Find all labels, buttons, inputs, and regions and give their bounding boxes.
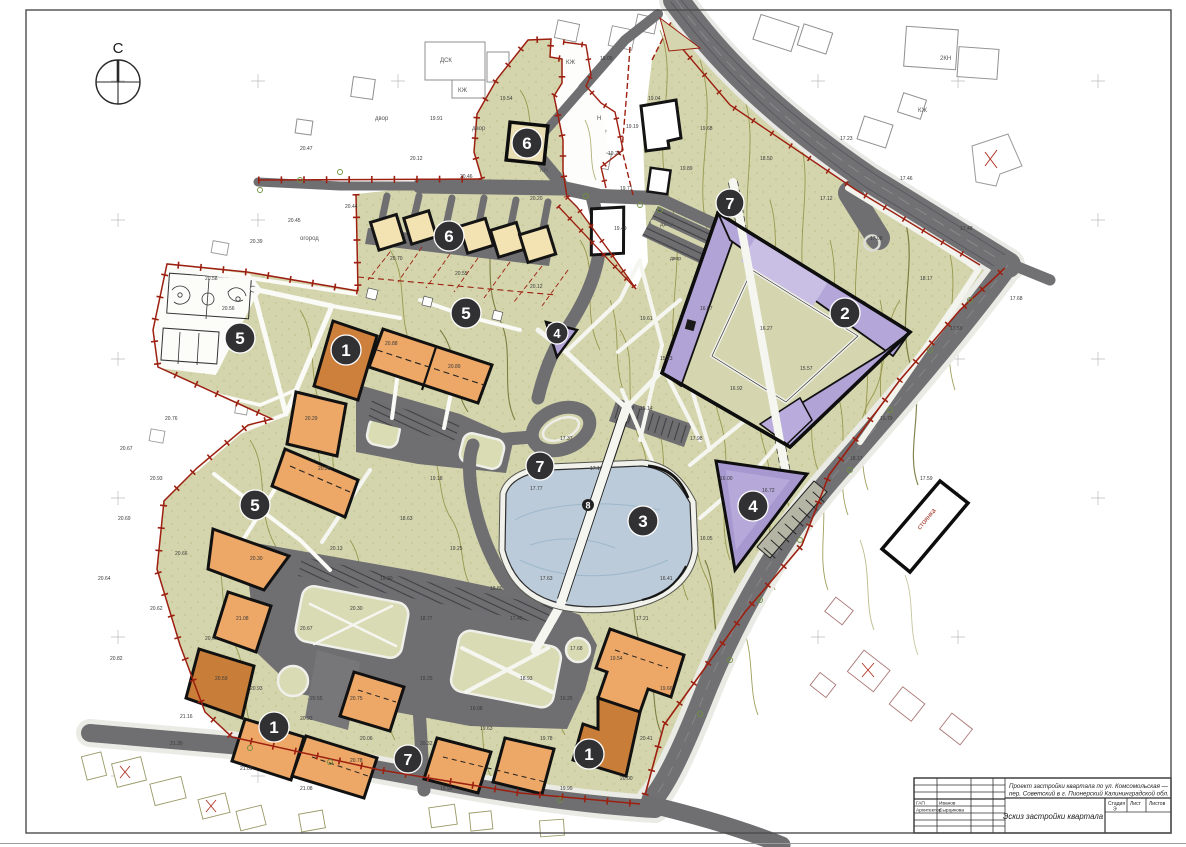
svg-text:17.12: 17.12 [820, 196, 833, 202]
svg-text:20.00: 20.00 [620, 776, 633, 782]
svg-text:18.77: 18.77 [420, 616, 433, 622]
svg-text:двор: двор [660, 222, 674, 228]
svg-text:ГАП: ГАП [916, 801, 925, 807]
svg-text:18.50: 18.50 [760, 156, 773, 162]
svg-text:огород: огород [300, 236, 319, 242]
svg-text:Архитектор: Архитектор [916, 808, 942, 814]
svg-text:20.67: 20.67 [120, 446, 133, 452]
svg-text:20.20: 20.20 [530, 196, 543, 202]
svg-text:17.17: 17.17 [590, 466, 603, 472]
svg-text:5: 5 [461, 304, 470, 323]
svg-text:Н: Н [597, 116, 601, 122]
svg-text:16.27: 16.27 [760, 326, 773, 332]
svg-text:19.49: 19.49 [614, 226, 627, 232]
svg-text:6: 6 [522, 134, 531, 153]
svg-text:19.19: 19.19 [626, 124, 639, 130]
svg-text:20.93: 20.93 [300, 716, 313, 722]
svg-text:16.92: 16.92 [730, 386, 743, 392]
svg-text:17.59: 17.59 [920, 476, 933, 482]
svg-text:20.55: 20.55 [455, 271, 468, 277]
svg-text:20.12: 20.12 [410, 156, 423, 162]
svg-text:2: 2 [840, 304, 849, 323]
svg-text:19.71: 19.71 [620, 186, 633, 192]
svg-text:5: 5 [235, 329, 244, 348]
svg-text:21.08: 21.08 [236, 616, 249, 622]
svg-text:21.30: 21.30 [170, 741, 183, 747]
svg-text:16.00: 16.00 [720, 476, 733, 482]
svg-text:Листов: Листов [1149, 801, 1166, 807]
svg-text:двор: двор [375, 116, 389, 122]
svg-text:2КН: 2КН [940, 56, 951, 62]
svg-text:19.25: 19.25 [450, 546, 463, 552]
svg-text:20.88: 20.88 [385, 341, 398, 347]
svg-text:17.21: 17.21 [636, 616, 649, 622]
svg-text:15.14: 15.14 [640, 406, 653, 412]
svg-text:8: 8 [585, 501, 590, 511]
svg-text:20.69: 20.69 [118, 516, 131, 522]
svg-text:19.18: 19.18 [430, 476, 443, 482]
svg-text:20.30: 20.30 [350, 606, 363, 612]
svg-text:20.93: 20.93 [250, 686, 263, 692]
svg-text:17.98: 17.98 [690, 436, 703, 442]
svg-text:20.66: 20.66 [175, 551, 188, 557]
svg-text:20.47: 20.47 [300, 146, 313, 152]
svg-text:20.75: 20.75 [350, 696, 363, 702]
svg-text:17.68: 17.68 [570, 646, 583, 652]
svg-text:17.45: 17.45 [510, 616, 523, 622]
svg-text:20.58: 20.58 [205, 276, 218, 282]
svg-text:20.64: 20.64 [98, 576, 111, 582]
svg-text:20.39: 20.39 [250, 239, 263, 245]
svg-text:17.68: 17.68 [1010, 296, 1023, 302]
svg-text:19.99: 19.99 [560, 786, 573, 792]
svg-text:1: 1 [584, 745, 593, 764]
svg-text:20.13: 20.13 [330, 546, 343, 552]
svg-text:КЖ: КЖ [918, 108, 927, 114]
svg-text:20.62: 20.62 [150, 606, 163, 612]
svg-text:16.05: 16.05 [700, 536, 713, 542]
svg-text:Сырцикова: Сырцикова [939, 808, 964, 814]
svg-text:17.77: 17.77 [530, 486, 543, 492]
svg-text:19.08: 19.08 [470, 706, 483, 712]
svg-text:20.41: 20.41 [640, 736, 653, 742]
svg-text:КЖ: КЖ [566, 60, 575, 66]
svg-text:20.55: 20.55 [310, 696, 323, 702]
svg-text:17.48: 17.48 [960, 226, 973, 232]
svg-text:15.23: 15.23 [660, 356, 673, 362]
svg-text:15.57: 15.57 [800, 366, 813, 372]
svg-text:4: 4 [553, 326, 561, 341]
svg-text:Стадия: Стадия [1108, 801, 1125, 807]
svg-text:19.91: 19.91 [430, 116, 443, 122]
svg-text:20.29: 20.29 [305, 416, 318, 422]
svg-text:21.09: 21.09 [240, 766, 253, 772]
svg-text:Э: Э [1113, 807, 1117, 813]
svg-text:16.07: 16.07 [700, 306, 713, 312]
svg-text:Эскиз застройки квартала: Эскиз застройки квартала [1003, 812, 1104, 821]
svg-text:20.56: 20.56 [222, 306, 235, 312]
svg-text:21.08: 21.08 [300, 786, 313, 792]
svg-text:17.59: 17.59 [950, 326, 963, 332]
svg-text:16.41: 16.41 [660, 576, 673, 582]
svg-text:20.67: 20.67 [300, 626, 313, 632]
svg-text:17.08: 17.08 [870, 236, 883, 242]
svg-text:19.61: 19.61 [640, 316, 653, 322]
svg-text:20.45: 20.45 [288, 218, 301, 224]
svg-text:19.54: 19.54 [500, 96, 513, 102]
svg-text:двор: двор [472, 126, 486, 132]
svg-text:18.93: 18.93 [520, 676, 533, 682]
svg-text:6: 6 [444, 227, 453, 246]
svg-text:17.23: 17.23 [840, 136, 853, 142]
svg-text:20.82: 20.82 [110, 656, 123, 662]
svg-text:17.63: 17.63 [540, 576, 553, 582]
svg-text:20.67: 20.67 [205, 636, 218, 642]
svg-text:19.05: 19.05 [600, 56, 613, 62]
svg-text:20.89: 20.89 [448, 364, 461, 370]
svg-text:19.99: 19.99 [440, 786, 453, 792]
svg-text:КН: КН [540, 168, 548, 174]
svg-text:17.37: 17.37 [560, 436, 573, 442]
svg-text:ДСК: ДСК [440, 58, 452, 64]
svg-text:20.46: 20.46 [460, 174, 473, 180]
svg-text:1: 1 [269, 718, 278, 737]
svg-text:19.54: 19.54 [610, 656, 623, 662]
svg-text:18.63: 18.63 [400, 516, 413, 522]
svg-text:18.17: 18.17 [850, 456, 863, 462]
svg-text:19.25: 19.25 [560, 696, 573, 702]
svg-text:C: C [113, 40, 124, 57]
svg-text:5: 5 [250, 496, 259, 515]
svg-text:16.79: 16.79 [880, 416, 893, 422]
svg-text:19.21: 19.21 [608, 151, 621, 157]
svg-text:19.66: 19.66 [660, 686, 673, 692]
svg-text:КЖ: КЖ [458, 88, 467, 94]
svg-text:7: 7 [536, 459, 545, 476]
svg-text:16.72: 16.72 [762, 488, 775, 494]
svg-text:пер. Советский в г. Пионерский: пер. Советский в г. Пионерский Калинингр… [1009, 791, 1169, 798]
svg-text:20.70: 20.70 [390, 256, 403, 262]
svg-text:20.28: 20.28 [318, 466, 331, 472]
svg-text:20.76: 20.76 [165, 416, 178, 422]
svg-text:20.44: 20.44 [345, 204, 358, 210]
svg-text:20.32: 20.32 [420, 741, 433, 747]
svg-text:7: 7 [726, 196, 735, 213]
svg-text:19.04: 19.04 [648, 96, 661, 102]
svg-text:19.30: 19.30 [380, 576, 393, 582]
svg-text:18.17: 18.17 [920, 276, 933, 282]
svg-text:19.78: 19.78 [540, 736, 553, 742]
svg-text:17.46: 17.46 [900, 176, 913, 182]
svg-text:20.93: 20.93 [150, 476, 163, 482]
svg-text:3: 3 [638, 512, 647, 531]
svg-text:Иванов: Иванов [939, 801, 956, 807]
svg-text:4: 4 [748, 497, 758, 516]
svg-text:20.78: 20.78 [350, 758, 363, 764]
svg-text:20.30: 20.30 [250, 556, 263, 562]
svg-text:19.63: 19.63 [480, 726, 493, 732]
svg-text:20.06: 20.06 [360, 736, 373, 742]
svg-text:20.59: 20.59 [215, 676, 228, 682]
svg-text:20.12: 20.12 [530, 284, 543, 290]
svg-text:Проект застройки квартала по у: Проект застройки квартала по ул. Комсомо… [1009, 783, 1169, 790]
svg-text:Лист: Лист [1130, 801, 1142, 807]
svg-text:7: 7 [404, 752, 413, 769]
svg-text:19.25: 19.25 [420, 676, 433, 682]
svg-text:двор: двор [670, 256, 681, 262]
svg-text:21.16: 21.16 [180, 714, 193, 720]
svg-text:18.86: 18.86 [490, 586, 503, 592]
svg-text:19.89: 19.89 [680, 166, 693, 172]
svg-text:1: 1 [341, 341, 350, 360]
svg-text:19.68: 19.68 [700, 126, 713, 132]
